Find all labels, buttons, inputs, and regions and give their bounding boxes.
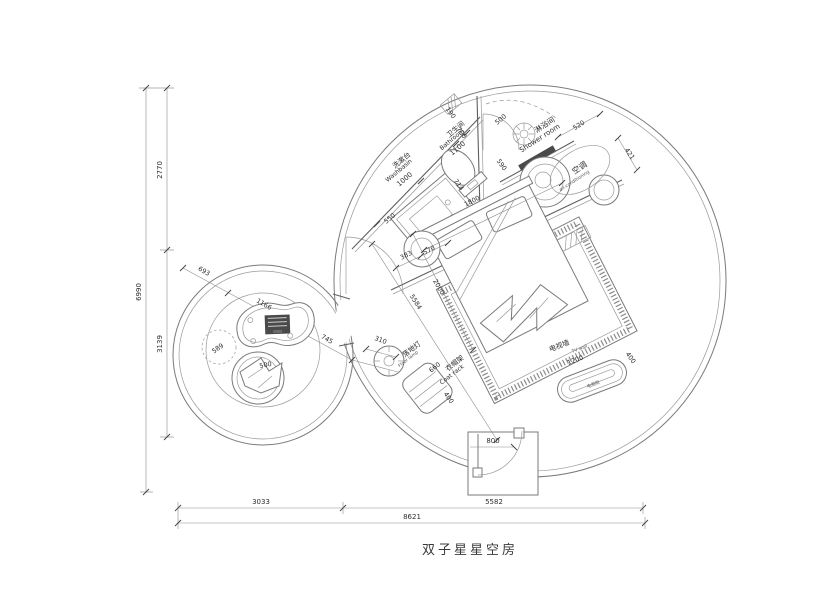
tv-wall-label-zh: 电视墙 — [548, 338, 571, 354]
dim-3033: 3033 — [252, 498, 270, 506]
dim-520: 520 — [572, 119, 587, 132]
dim-3139: 3139 — [156, 335, 164, 353]
door-hinge-block — [514, 428, 524, 438]
dim-310: 310 — [373, 334, 387, 346]
side-stool-right — [589, 175, 619, 205]
dim-590: 590 — [495, 157, 509, 172]
dim-8621: 8621 — [403, 513, 421, 521]
dim-1200: 1200 — [566, 353, 584, 366]
dim-660: 660 — [427, 360, 442, 374]
passage-door — [346, 237, 403, 294]
dim-400-rack: 400 — [442, 390, 456, 405]
dimension-ticks — [143, 85, 170, 495]
dim-6990: 6990 — [135, 283, 143, 301]
door-leaf-end — [473, 468, 482, 477]
floorplan-svg: 空调 air-conditioning 电视柜 — [0, 0, 837, 592]
dim-2000: 2000 — [431, 278, 446, 296]
dim-entry-800: 800 — [486, 437, 499, 445]
dim-2770: 2770 — [156, 161, 164, 179]
floor-lamp — [374, 346, 404, 376]
dim-421: 421 — [623, 146, 637, 161]
dim-400-tv: 400 — [624, 350, 638, 365]
drawing-title: 双子星星空房 — [422, 542, 518, 558]
bean-chair — [232, 352, 284, 404]
shower-dashed-boundary — [486, 100, 556, 118]
entry-vestibule: 800 — [468, 428, 538, 495]
dim-5584: 5584 — [408, 293, 424, 311]
dim-5582: 5582 — [485, 498, 503, 506]
dim-693: 693 — [197, 265, 212, 278]
kidney-desk — [231, 291, 320, 359]
floorplan-canvas: 空调 air-conditioning 电视柜 — [0, 0, 837, 592]
laptop — [265, 315, 291, 335]
dim-589: 589 — [210, 342, 225, 356]
dim-500-shower: 500 — [493, 112, 508, 126]
tv-cabinet: 电视柜 — [554, 356, 631, 406]
